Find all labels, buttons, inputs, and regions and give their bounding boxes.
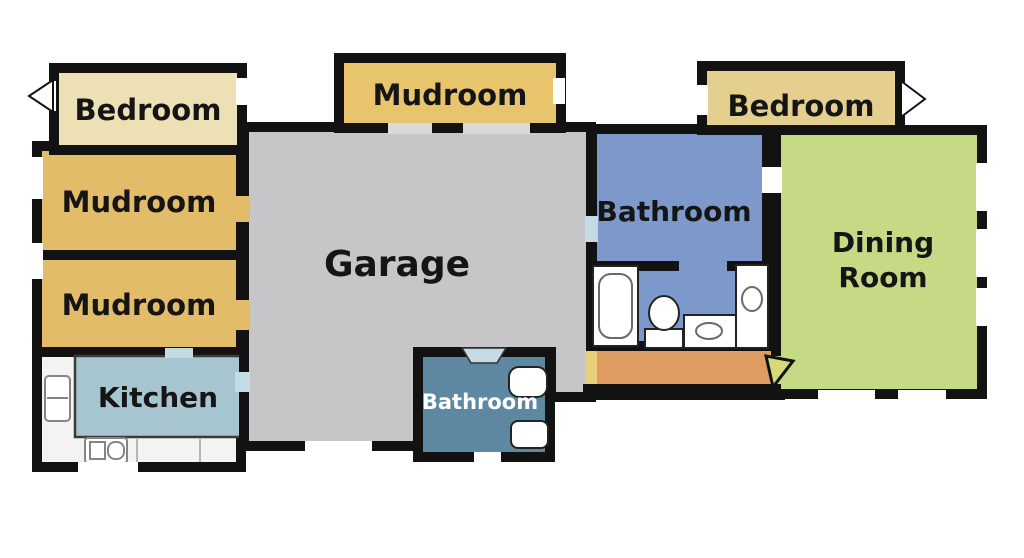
label-mudroom-2: Mudroom (62, 288, 217, 322)
door-arrow-icon (29, 80, 53, 112)
label-mudroom-1: Mudroom (62, 185, 217, 219)
door-gap (388, 123, 432, 134)
window (78, 462, 138, 473)
vanity-sink-icon (684, 315, 741, 348)
window (976, 229, 988, 277)
door-gap (165, 348, 193, 358)
window (818, 390, 875, 400)
label-dining-line2: Room (838, 261, 927, 294)
label-dining-line1: Dining (832, 226, 934, 259)
door-gap (236, 78, 249, 105)
label-bedroom-left: Bedroom (75, 93, 222, 127)
label-bedroom-right: Bedroom (728, 89, 875, 123)
sink-icon (511, 421, 548, 448)
cabinet-icon (736, 265, 768, 348)
window (976, 288, 988, 326)
label-bathroom-main: Bathroom (596, 195, 751, 228)
door-gap (695, 85, 708, 115)
label-mudroom-top: Mudroom (373, 78, 528, 112)
window (31, 243, 43, 279)
door-gap (235, 372, 250, 392)
window (305, 441, 372, 452)
hallway-door (585, 351, 597, 384)
kitchen-sink-icon (85, 438, 127, 463)
window (31, 157, 43, 199)
door-arrow-icon (901, 81, 925, 117)
window (976, 163, 988, 211)
door-gap (463, 123, 530, 134)
bathroom-main (587, 129, 772, 348)
door-gap (553, 78, 565, 104)
toilet-icon (645, 296, 683, 348)
door-gap (235, 196, 250, 222)
label-bathroom-small: Bathroom (422, 390, 538, 414)
label-garage: Garage (324, 244, 470, 285)
fridge-icon (45, 376, 70, 421)
door-gap (235, 300, 250, 330)
label-kitchen: Kitchen (98, 381, 218, 414)
room-hallway (591, 351, 771, 384)
floor-plan: Bedroom Mudroom Mudroom Kitchen Mudroom … (0, 0, 1024, 558)
hallway (583, 351, 785, 400)
window (898, 390, 946, 400)
hallway-bottom-wall (583, 384, 785, 400)
bathtub-icon (593, 266, 638, 346)
door-gap (762, 167, 782, 193)
window (474, 452, 501, 463)
